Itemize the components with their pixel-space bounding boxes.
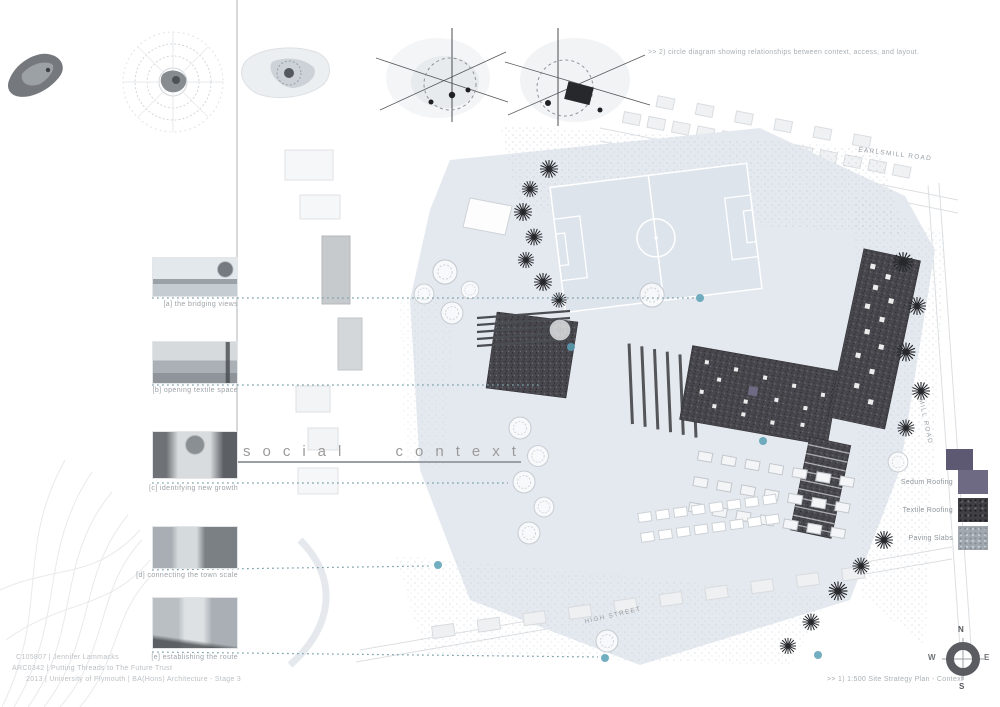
plan-annotation: >> 1) 1:500 Site Strategy Plan - Context bbox=[827, 676, 963, 683]
legend-item-sedum: Sedum Roofing bbox=[878, 470, 988, 494]
compass-south-label: S bbox=[959, 682, 964, 691]
photo-caption-b: [b] opening textile space bbox=[100, 387, 238, 394]
materials-legend: Sedum Roofing Textile Roofing Paving Sla… bbox=[878, 470, 988, 554]
analysis-diagram-1 bbox=[376, 28, 508, 122]
presentation-board: social context >> 2) circle diagram show… bbox=[0, 0, 1000, 707]
sedum-swatch bbox=[958, 470, 988, 494]
analysis-diagram-2 bbox=[505, 28, 650, 126]
site-photo-d bbox=[152, 526, 238, 569]
textile-swatch bbox=[958, 498, 988, 522]
diagram-annotation: >> 2) circle diagram showing relationshi… bbox=[648, 49, 919, 56]
credit-line-student: C105807 | Jennifer Lammacks bbox=[16, 652, 241, 663]
site-plan-drawing bbox=[0, 0, 1000, 707]
legend-item-textile: Textile Roofing bbox=[878, 498, 988, 522]
legend-label: Textile Roofing bbox=[903, 507, 953, 514]
legend-item-paving: Paving Slabs bbox=[878, 526, 988, 550]
project-credits: C105807 | Jennifer Lammacks ARC0342 | Pu… bbox=[12, 652, 241, 685]
compass-icon bbox=[942, 638, 984, 680]
sedum-roof-sample bbox=[946, 449, 973, 470]
page-title: social context bbox=[243, 443, 528, 460]
site-photo-e bbox=[152, 597, 238, 649]
context-maps bbox=[8, 32, 330, 132]
compass-west-label: W bbox=[928, 653, 936, 662]
legend-label: Sedum Roofing bbox=[901, 479, 953, 486]
credit-line-project: ARC0342 | Putting Threads to The Future … bbox=[12, 663, 241, 674]
photo-caption-a: [a] the bridging views bbox=[100, 301, 238, 308]
compass-north-label: N bbox=[958, 625, 964, 634]
legend-label: Paving Slabs bbox=[909, 535, 953, 542]
credit-line-school: 2013 | University of Plymouth | BA(Hons)… bbox=[26, 674, 241, 685]
site-photo-b bbox=[152, 341, 238, 384]
photo-caption-c: [c] identifying new growth bbox=[100, 485, 238, 492]
compass-east-label: E bbox=[984, 653, 989, 662]
site-photo-a bbox=[152, 257, 238, 297]
paving-swatch bbox=[958, 526, 988, 550]
site-photo-c bbox=[152, 431, 238, 479]
photo-caption-d: [d] connecting the town scale bbox=[100, 572, 238, 579]
